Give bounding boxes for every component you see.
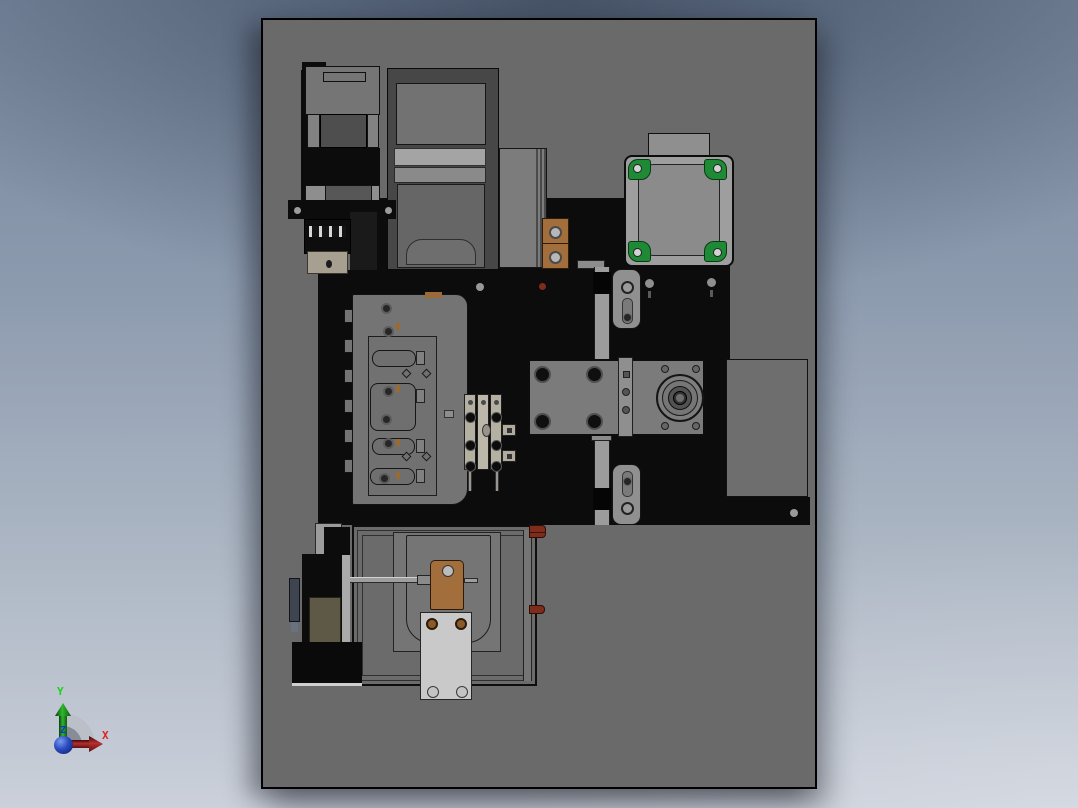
tool-bolt-2 <box>491 412 502 423</box>
gear-block-bolt-bl <box>534 413 551 430</box>
tool-bolt-3 <box>465 440 476 451</box>
actuator-mid-panel[interactable] <box>320 114 367 148</box>
bracket-lower-hole <box>621 502 634 515</box>
gearbox-lower-block[interactable] <box>397 184 485 268</box>
platform-dot-1 <box>476 283 484 291</box>
gear-block-bolt-tr <box>586 366 603 383</box>
motor-green-tab-bl <box>628 241 651 262</box>
gearbox-top-panel[interactable] <box>396 83 486 145</box>
tool-bolt-6 <box>491 461 502 472</box>
tool-dot-2 <box>481 400 486 405</box>
bracket-lower-screw <box>623 477 632 486</box>
gripper-fins <box>309 226 346 237</box>
motor-edge-strip <box>342 555 350 643</box>
platform-red-dot <box>539 283 546 290</box>
platform-tick-1 <box>648 291 651 298</box>
flange-hole-tl <box>661 365 669 373</box>
platform-tick-2 <box>710 290 713 297</box>
platform-dot-2 <box>645 279 654 288</box>
platform-dot-3 <box>707 278 716 287</box>
copper-divider <box>543 243 568 244</box>
actuator-top-slot <box>323 72 366 82</box>
origin-sphere <box>54 736 73 754</box>
actuator-base-center <box>325 186 372 201</box>
copper-spacer-block[interactable] <box>542 218 569 269</box>
tool-side-tab-1 <box>502 424 516 436</box>
red-peg-divider <box>530 532 545 533</box>
gearbox-light-band <box>394 148 486 166</box>
sensor-strip-hole-2 <box>622 406 630 414</box>
rail-block-top <box>593 272 611 294</box>
motor-green-tab-tr <box>704 159 727 180</box>
z-axis-label: Z <box>60 726 66 736</box>
tool-rod-2 <box>495 469 499 491</box>
slotted-bracket-upper[interactable] <box>612 269 641 329</box>
gearbox-right-column[interactable] <box>499 148 547 268</box>
fixture-screw-2 <box>383 326 394 337</box>
fixture-copper-pin-4 <box>396 472 400 479</box>
bracket-upper-hole <box>621 281 634 294</box>
gearbox-band <box>394 167 486 183</box>
x-axis-label: X <box>102 730 109 741</box>
motor-olive-panel <box>309 597 341 644</box>
motor-green-tab-tl <box>628 159 651 180</box>
shaft-coupler <box>417 575 431 585</box>
tool-side-tab-2 <box>502 450 516 462</box>
fixture-screw-5 <box>383 438 394 449</box>
clamp-slot-4[interactable] <box>370 468 415 485</box>
clamp-slot-1[interactable] <box>372 350 416 367</box>
tool-dot-3 <box>494 400 499 405</box>
y-axis-arrowhead <box>55 703 71 716</box>
gripper-bracket[interactable] <box>350 212 377 270</box>
gripper-base[interactable] <box>307 251 348 274</box>
flange-hole-bl <box>661 422 669 430</box>
plate-copper-bolt-1 <box>426 618 438 630</box>
fixture-copper-pin-3 <box>396 439 400 446</box>
bar-screw-dot <box>790 509 798 517</box>
motor-foot[interactable] <box>292 642 362 686</box>
bar-dot-left <box>294 207 301 214</box>
bar-dot-right <box>385 207 392 214</box>
fixture-copper-pin-1 <box>396 323 400 330</box>
plate-hole-2 <box>456 686 468 698</box>
fixture-screw-4 <box>381 414 392 425</box>
flange-hub-dot <box>676 394 684 402</box>
plate-copper-bolt-2 <box>455 618 467 630</box>
tool-bolt-1 <box>465 412 476 423</box>
motor-screw-tr <box>713 164 722 173</box>
gear-block-bolt-tl <box>534 366 551 383</box>
shaft-stub <box>464 578 478 583</box>
cad-viewport[interactable]: Y X Z <box>0 0 1078 808</box>
tool-side-tab-dot <box>507 454 512 459</box>
motor-screw-br <box>713 248 722 257</box>
tool-oval <box>482 424 491 437</box>
mounting-bar[interactable] <box>288 200 396 219</box>
gripper-base-hole <box>326 260 332 268</box>
red-peg-bottom <box>529 605 545 614</box>
motor-screw-tl <box>633 164 642 173</box>
tool-rod-1 <box>468 469 472 491</box>
clamp-tab-1 <box>416 351 425 365</box>
bracket-upper-screw <box>623 313 632 322</box>
motor-screw-bl <box>633 248 642 257</box>
clamp-tab-3 <box>416 439 425 453</box>
flange-hole-br <box>692 422 700 430</box>
tool-block-strip-1[interactable] <box>464 394 476 470</box>
actuator-black-section[interactable] <box>303 148 380 189</box>
tool-side-tab-dot <box>507 428 512 433</box>
clamp-tab-4 <box>416 469 425 483</box>
actuator-tab-left <box>307 114 320 148</box>
motor-side-block[interactable] <box>289 578 300 622</box>
x-axis-arrowhead <box>89 736 103 752</box>
motor-green-tab-br <box>704 241 727 262</box>
flange-hole-tr <box>692 365 700 373</box>
fixture-copper-wedge <box>425 292 442 298</box>
machine-base-plate[interactable] <box>261 18 817 789</box>
tool-dot-1 <box>468 400 473 405</box>
fixture-copper-pin-2 <box>396 385 400 392</box>
tool-bolt-5 <box>465 461 476 472</box>
slotted-bracket-lower[interactable] <box>612 464 641 525</box>
actuator-body[interactable] <box>305 66 380 115</box>
tool-bolt-4 <box>491 440 502 451</box>
gearbox-dome-outline <box>406 239 476 265</box>
tool-block-nub <box>444 410 454 418</box>
motor-side-tab <box>291 622 298 632</box>
red-peg-top <box>529 525 546 538</box>
sensor-strip-square <box>623 371 630 378</box>
fixture-screw-1 <box>381 303 392 314</box>
y-axis-label: Y <box>57 686 64 697</box>
rail-block-bottom <box>593 488 611 510</box>
gripper-body[interactable] <box>304 219 351 254</box>
copper-bracket[interactable] <box>430 560 464 610</box>
gear-block-bolt-br <box>586 413 603 430</box>
tool-block-strip-3[interactable] <box>490 394 502 470</box>
copper-bolt-bottom <box>549 251 562 264</box>
bottom-mounting-plate[interactable] <box>420 612 472 700</box>
right-side-plate[interactable] <box>726 359 808 497</box>
fixture-screw-3 <box>383 386 394 397</box>
plate-hole-1 <box>427 686 439 698</box>
sensor-strip-hole-1 <box>622 388 630 396</box>
fixture-screw-6 <box>379 473 390 484</box>
actuator-tab-right <box>367 114 379 148</box>
sensor-strip[interactable] <box>618 357 633 437</box>
copper-bracket-hole <box>442 565 454 577</box>
clamp-tab-2 <box>416 389 425 403</box>
copper-bolt-top <box>549 226 562 239</box>
